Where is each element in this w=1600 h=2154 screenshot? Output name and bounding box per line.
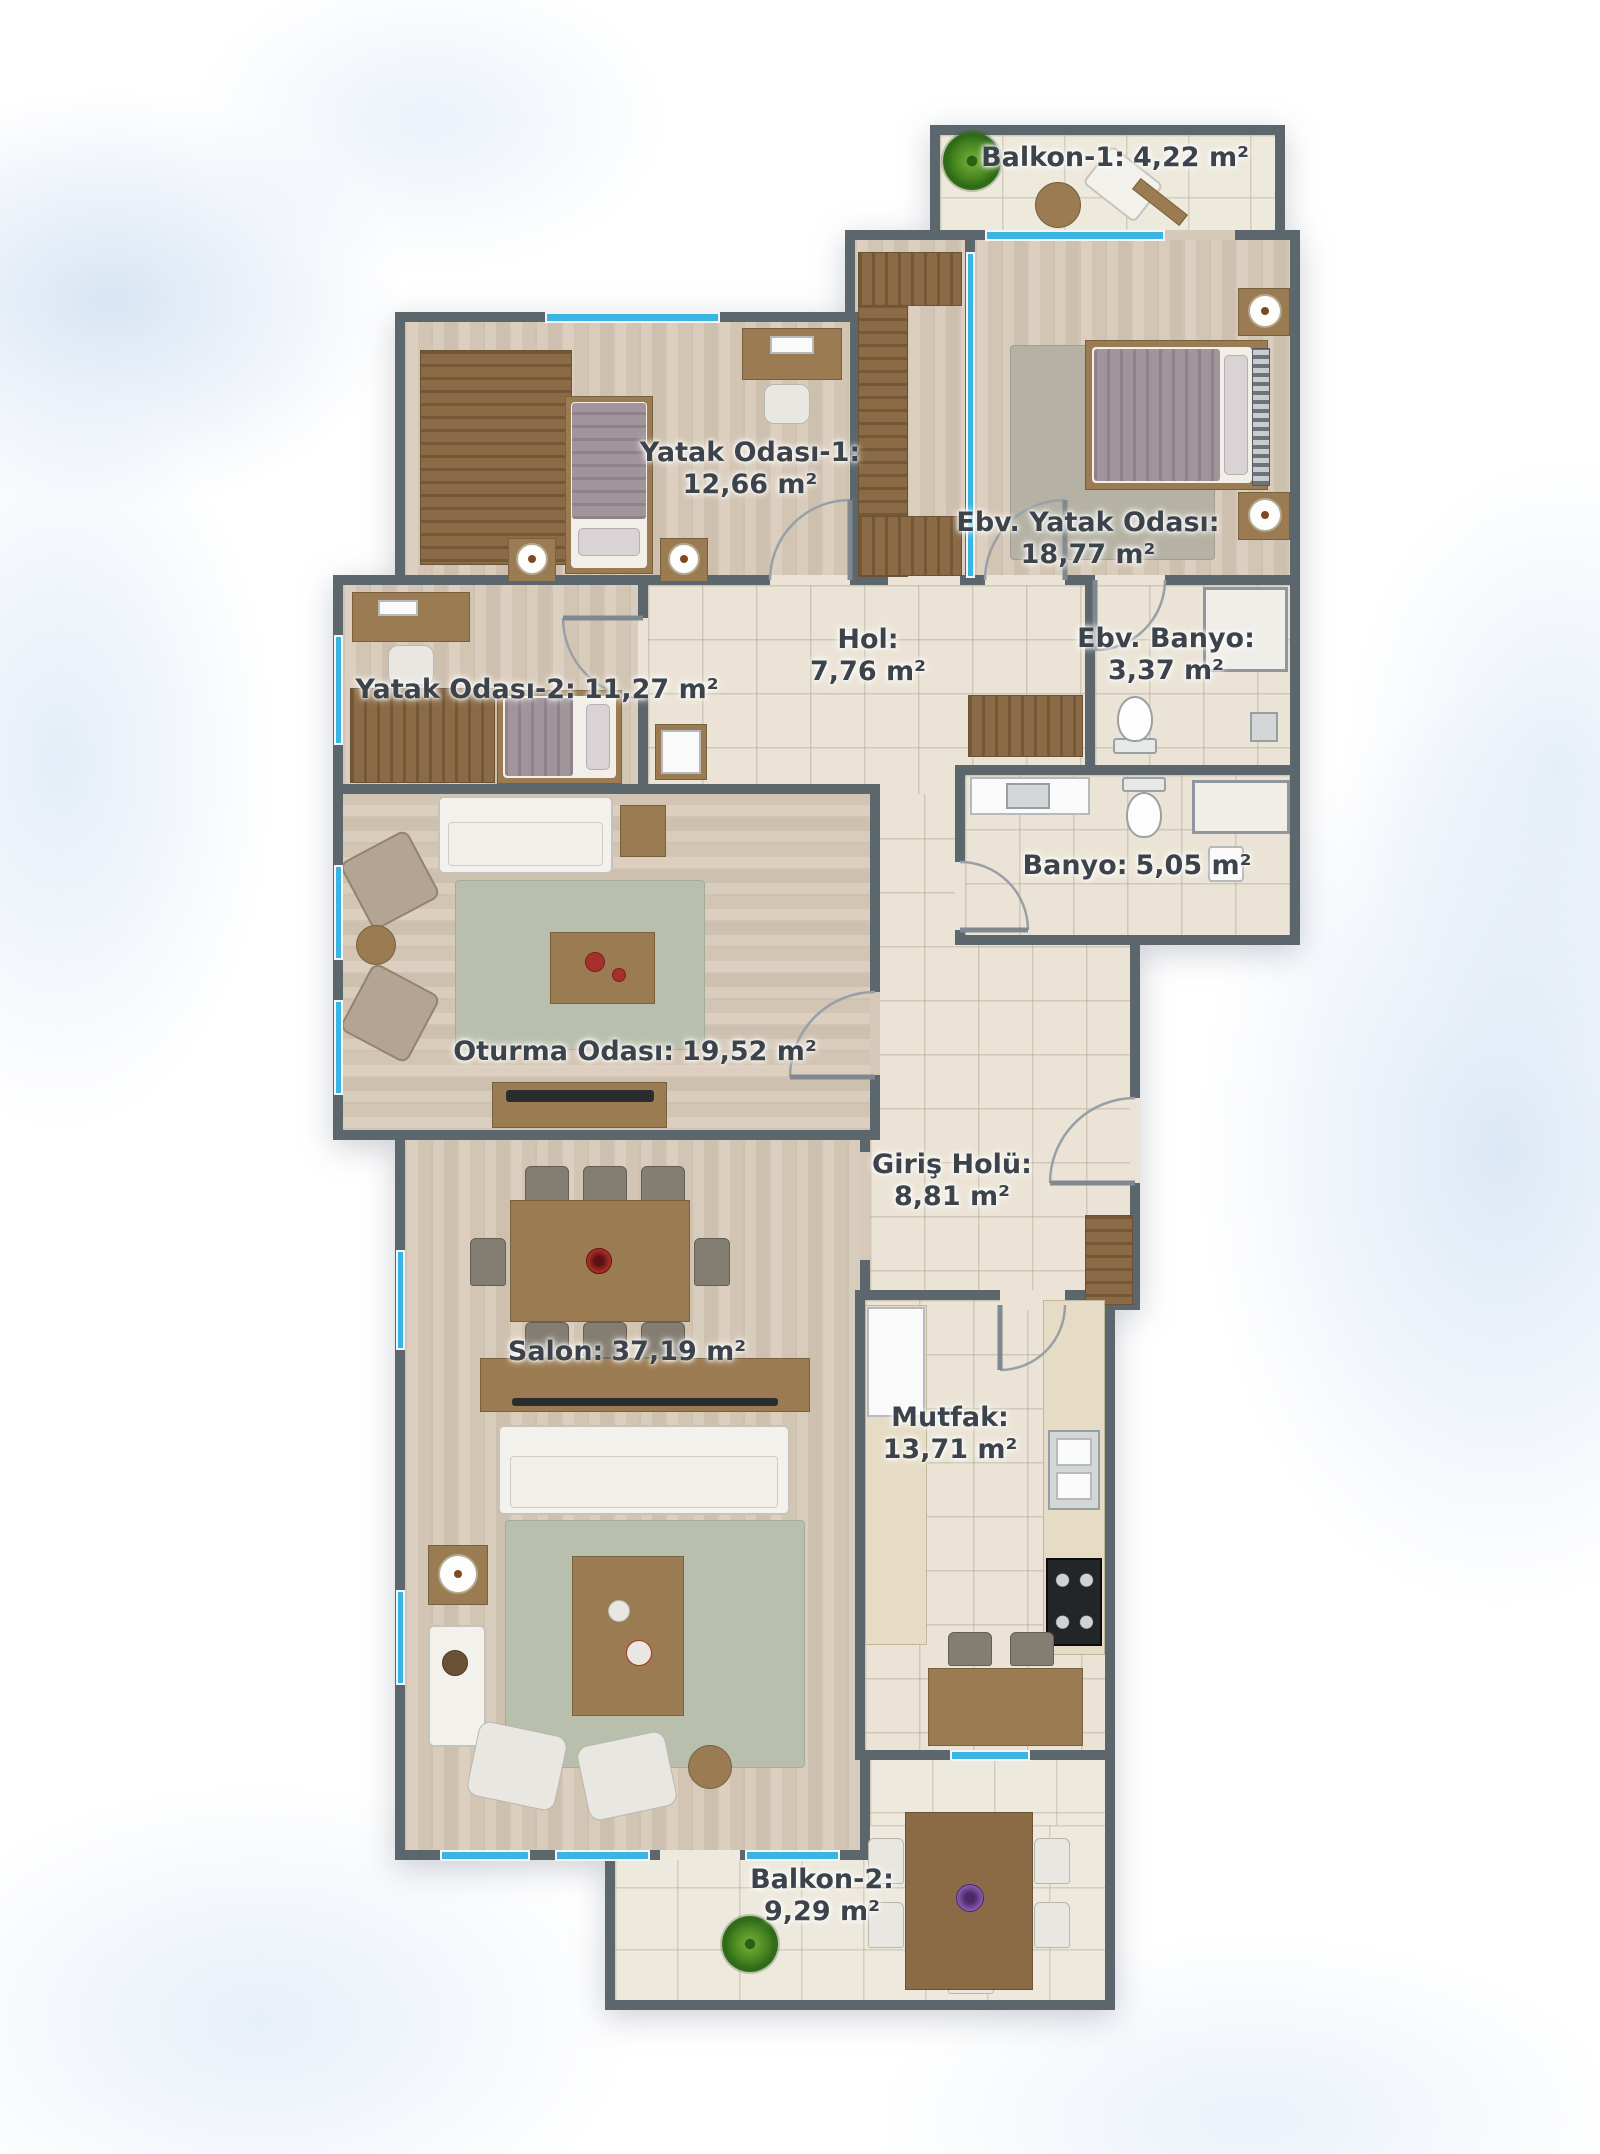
window-salon-bottom-2 <box>555 1850 650 1861</box>
banyo-toilet <box>1126 792 1162 838</box>
room-area: 5,05 m² <box>1135 850 1251 881</box>
ebv-yatak-pillow <box>1224 355 1248 475</box>
room-area: 8,81 m² <box>872 1181 1032 1213</box>
label-balkon-2: Balkon-2:9,29 m² <box>750 1864 894 1928</box>
room-area: 18,77 m² <box>956 539 1219 571</box>
room-name: Ebv. Yatak Odası: <box>956 507 1219 539</box>
window-salon-left-2 <box>396 1590 405 1685</box>
yatak1-lamp-1 <box>516 543 548 575</box>
wardrobe-giyinme-bottom <box>858 516 962 576</box>
mutfak-sink-basin-2 <box>1056 1472 1092 1500</box>
room-area: 12,66 m² <box>640 469 860 501</box>
mutfak-chair-1 <box>948 1632 992 1666</box>
hol-console <box>968 695 1083 757</box>
yatak1-pillow <box>578 528 640 556</box>
banyo-sink <box>1006 783 1050 809</box>
salon-dining-chair-1 <box>525 1166 569 1202</box>
oturma-side-table <box>356 925 396 965</box>
salon-chaise <box>428 1625 486 1747</box>
yatak2-pillow <box>586 704 610 770</box>
room-area: 3,37 m² <box>1077 655 1255 687</box>
yatak1-blanket <box>572 403 646 519</box>
window-oturma-2 <box>334 1000 343 1095</box>
doorway-banyo <box>955 862 965 930</box>
mutfak-sink-basin-1 <box>1056 1438 1092 1466</box>
floor-plan-page: Balkon-1:4,22 m² Yatak Odası-1:12,66 m² … <box>0 0 1600 2154</box>
mutfak-chair-2 <box>1010 1632 1054 1666</box>
yatak1-lamp-2 <box>668 543 700 575</box>
room-name: Yatak Odası-1: <box>640 437 860 469</box>
salon-lamp <box>438 1554 478 1594</box>
room-name: Mutfak: <box>883 1402 1018 1434</box>
salon-dining-chair-3 <box>641 1166 685 1202</box>
oturma-tv-console <box>492 1082 667 1128</box>
window-balkon1-ebv-yatak <box>985 230 1165 241</box>
yatak1-desk-chair <box>764 384 810 424</box>
salon-ottoman <box>688 1745 732 1789</box>
room-name: Yatak Odası-2: <box>355 674 575 705</box>
mutfak-table <box>928 1668 1083 1746</box>
doorway-oturma <box>870 992 880 1075</box>
salon-table-flower <box>586 1248 612 1274</box>
banyo-toilet-tank <box>1122 777 1166 792</box>
label-giris-holu: Giriş Holü:8,81 m² <box>872 1149 1032 1213</box>
doorway-ebv-banyo <box>1095 575 1165 585</box>
label-oturma-odasi: Oturma Odası:19,52 m² <box>453 1036 817 1068</box>
balkon2-flower <box>956 1884 984 1912</box>
doorway-balkon1 <box>1165 230 1235 240</box>
doorway-entrance <box>1130 1098 1140 1183</box>
oturma-decor-red-2 <box>612 968 626 982</box>
window-salon-bottom-1 <box>440 1850 530 1861</box>
room-area: 4,22 m² <box>1133 142 1249 173</box>
room-name: Oturma Odası: <box>453 1036 674 1067</box>
salon-dining-chair-5 <box>694 1238 730 1286</box>
room-name: Hol: <box>810 624 926 656</box>
window-yatak2 <box>334 635 343 745</box>
wardrobe-giyinme-top <box>858 252 962 306</box>
oturma-sofa-seat <box>448 822 603 866</box>
banyo-shower <box>1192 780 1290 834</box>
hol-shoe-cabinet-top <box>661 730 701 774</box>
balkon1-table <box>1035 182 1081 228</box>
window-salon-left-1 <box>396 1250 405 1350</box>
yatak1-desk-items <box>770 336 814 354</box>
room-name: Banyo: <box>1023 850 1128 881</box>
balkon2-chair-4 <box>1034 1902 1070 1948</box>
room-area: 9,29 m² <box>750 1896 894 1928</box>
room-area: 19,52 m² <box>682 1036 817 1067</box>
label-mutfak: Mutfak:13,71 m² <box>883 1402 1018 1466</box>
ebv-banyo-sink <box>1250 712 1278 742</box>
label-balkon-1: Balkon-1:4,22 m² <box>981 142 1249 174</box>
room-area: 13,71 m² <box>883 1434 1018 1466</box>
label-hol: Hol:7,76 m² <box>810 624 926 688</box>
salon-tray-1 <box>608 1600 630 1622</box>
floor-plan: Balkon-1:4,22 m² Yatak Odası-1:12,66 m² … <box>0 0 1600 2154</box>
doorway-yatak1 <box>770 575 850 585</box>
window-oturma-1 <box>334 865 343 960</box>
ebv-yatak-blanket <box>1094 349 1220 481</box>
label-yatak-odasi-1: Yatak Odası-1:12,66 m² <box>640 437 860 501</box>
room-name: Ebv. Banyo: <box>1077 623 1255 655</box>
label-ebv-banyo: Ebv. Banyo:3,37 m² <box>1077 623 1255 687</box>
salon-dining-chair-4 <box>470 1238 506 1286</box>
label-ebv-yatak-odasi: Ebv. Yatak Odası:18,77 m² <box>956 507 1219 571</box>
room-name: Balkon-2: <box>750 1864 894 1896</box>
room-name: Giriş Holü: <box>872 1149 1032 1181</box>
salon-coffee-table <box>572 1556 684 1716</box>
salon-console-detail <box>512 1398 778 1406</box>
room-area: 37,19 m² <box>611 1336 746 1367</box>
ebv-banyo-toilet <box>1117 696 1153 742</box>
opening-salon-giris <box>860 1152 870 1260</box>
ebv-yatak-headboard <box>1252 348 1270 486</box>
room-area: 11,27 m² <box>584 674 719 705</box>
salon-sofa-seat <box>510 1456 778 1508</box>
salon-tray-2 <box>626 1640 652 1666</box>
room-name: Balkon-1: <box>981 142 1125 173</box>
room-area: 7,76 m² <box>810 656 926 688</box>
giris-cabinet <box>1085 1215 1133 1305</box>
doorway-ebv-yatak <box>985 575 1065 585</box>
ebv-yatak-lamp-1 <box>1248 294 1282 328</box>
oturma-tv <box>506 1090 654 1102</box>
salon-chaise-hat <box>442 1650 468 1676</box>
label-salon: Salon:37,19 m² <box>508 1336 746 1368</box>
oturma-stool <box>620 805 666 857</box>
oturma-decor-red-1 <box>585 952 605 972</box>
balkon2-chair-3 <box>1034 1838 1070 1884</box>
salon-dining-chair-2 <box>583 1166 627 1202</box>
window-salon-bottom-3 <box>745 1850 840 1861</box>
yatak2-blanket <box>505 698 573 776</box>
window-yatak1 <box>545 312 720 323</box>
yatak2-desk-items <box>378 600 418 616</box>
mutfak-fridge <box>867 1307 925 1417</box>
doorway-balkon2 <box>660 1850 740 1860</box>
mutfak-stove <box>1046 1558 1102 1646</box>
yatak1-wardrobe <box>420 350 572 565</box>
ebv-yatak-lamp-2 <box>1248 498 1282 532</box>
room-name: Salon: <box>508 1336 604 1367</box>
label-banyo: Banyo:5,05 m² <box>1023 850 1252 882</box>
window-mutfak-balkon <box>950 1750 1030 1761</box>
label-yatak-odasi-2: Yatak Odası-2:11,27 m² <box>355 674 718 706</box>
